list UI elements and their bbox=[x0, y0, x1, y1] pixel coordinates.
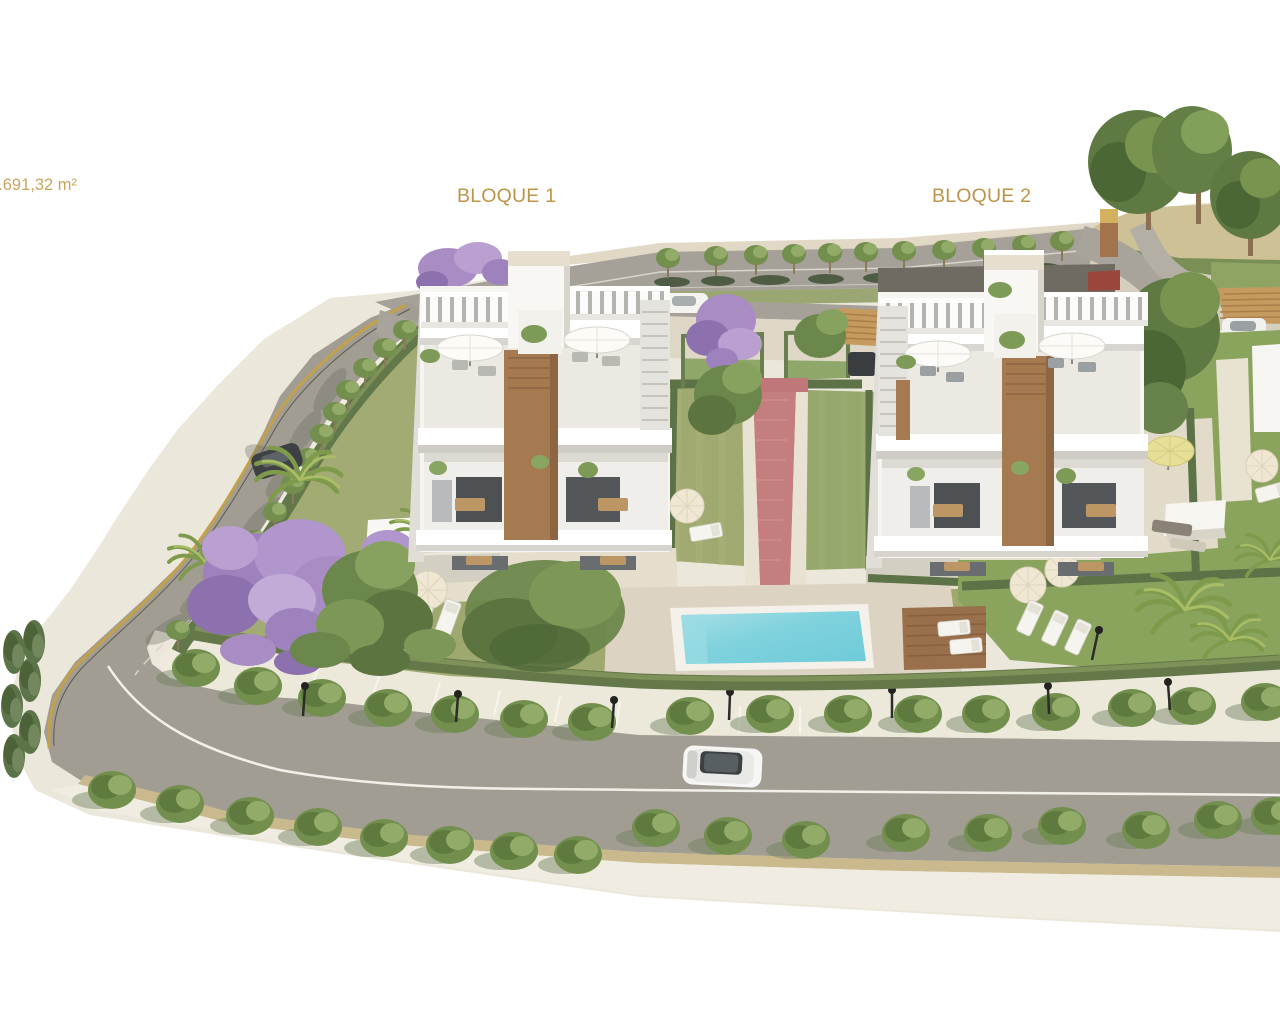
svg-text:1.691,32 m²: 1.691,32 m² bbox=[0, 176, 78, 194]
svg-text:BLOQUE 1: BLOQUE 1 bbox=[457, 185, 556, 207]
svg-text:BLOQUE 2: BLOQUE 2 bbox=[932, 185, 1031, 207]
